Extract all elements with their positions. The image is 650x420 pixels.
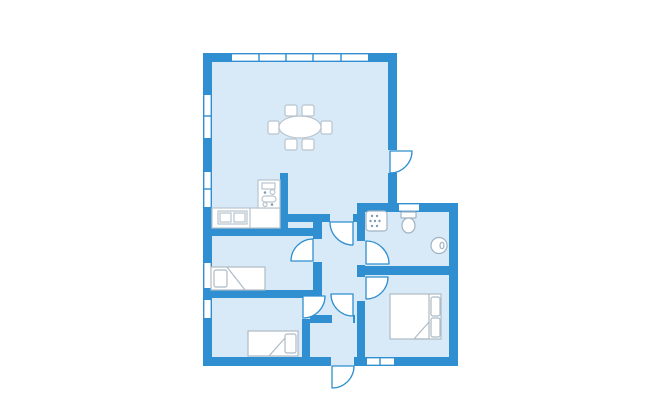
stove-panel — [262, 183, 275, 189]
master-bedroom-window-south — [367, 357, 394, 366]
shower-dot — [371, 215, 373, 217]
living-room-window-north — [232, 53, 368, 62]
stove-burner — [263, 203, 267, 207]
kitchen-sink-bowl — [220, 213, 231, 222]
apartment-floor-plan — [0, 0, 650, 420]
toilet-bowl — [402, 218, 415, 233]
stove-burner — [271, 203, 274, 206]
exterior-wall-bottom — [203, 357, 458, 366]
shower-dot — [369, 220, 371, 222]
shower-dot — [378, 220, 380, 222]
stove-burner — [264, 191, 267, 194]
kitchen-window-west — [203, 172, 212, 207]
kitchen-sink-bowl — [234, 213, 245, 222]
front-door-swing — [332, 366, 354, 388]
dining-chair — [285, 139, 297, 150]
master-door-gap — [357, 277, 365, 301]
dining-table — [279, 116, 321, 138]
bedroom2-window-west — [203, 300, 212, 318]
double-bed-pillow — [431, 297, 440, 316]
bathroom-door-gap — [357, 241, 365, 265]
dining-chair — [285, 105, 297, 116]
bedroom1-door-gap — [313, 239, 322, 262]
living-hall-door-gap — [330, 214, 353, 222]
front-door-gap — [331, 357, 354, 366]
shower — [366, 211, 387, 231]
dining-chair — [302, 105, 314, 116]
bathroom-south-wall — [357, 266, 449, 275]
stove-burner — [270, 190, 275, 195]
dining-chair — [302, 139, 314, 150]
toilet-tank — [401, 212, 416, 218]
shower-dot — [371, 225, 373, 227]
shower-dot — [376, 215, 378, 217]
floor-plan-page — [0, 0, 650, 420]
exterior-wall-right — [449, 203, 458, 366]
washbasin-tap — [440, 242, 444, 248]
bathroom-window-north — [399, 203, 419, 212]
single-bed-2-pillow — [285, 334, 296, 353]
shower-dot — [376, 225, 378, 227]
living-room-window-west — [203, 95, 212, 138]
single-bed-1-pillow — [214, 270, 227, 287]
stove-oven — [262, 196, 276, 202]
double-bed-pillow — [431, 318, 440, 337]
terrace-door-swing — [390, 151, 412, 173]
living-room-east-wall — [388, 53, 397, 212]
bedroom1-north-wall — [203, 228, 322, 236]
shower-dot — [374, 220, 376, 222]
dining-chair — [268, 121, 279, 134]
kitchen-partition-wall — [280, 173, 288, 236]
dining-chair — [321, 121, 332, 134]
